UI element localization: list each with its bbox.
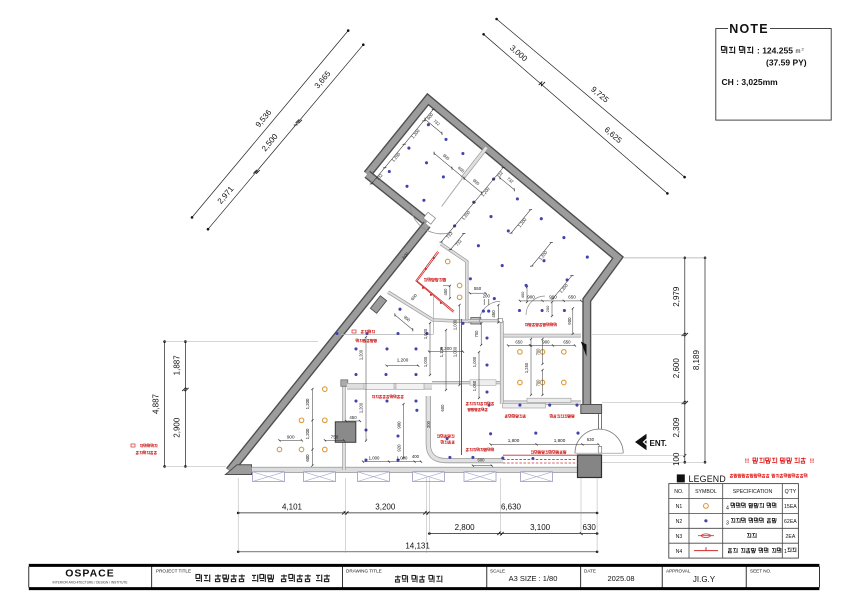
svg-text:100: 100 (672, 452, 681, 466)
svg-text:650: 650 (568, 295, 576, 300)
svg-text:2EA: 2EA (785, 534, 795, 540)
svg-text:1,000: 1,000 (423, 356, 428, 367)
svg-text:1,200: 1,200 (397, 358, 409, 363)
svg-text:4,887: 4,887 (152, 393, 161, 414)
svg-text:NO.: NO. (674, 489, 683, 495)
svg-text:3: 3 (726, 520, 729, 526)
svg-text:APPROVAL: APPROVAL (666, 569, 691, 574)
svg-text:15EA: 15EA (784, 504, 797, 510)
svg-text:SPECIFICATION: SPECIFICATION (733, 489, 773, 495)
svg-text:2,800: 2,800 (455, 523, 476, 532)
svg-text:900: 900 (397, 421, 402, 429)
svg-text:N1: N1 (676, 504, 683, 510)
svg-text:400: 400 (520, 291, 525, 298)
svg-text:920: 920 (397, 444, 402, 452)
svg-text:N2: N2 (676, 519, 683, 525)
svg-text:SYMBOL: SYMBOL (695, 489, 717, 495)
svg-text:900: 900 (527, 295, 535, 300)
svg-text:900: 900 (549, 295, 557, 300)
svg-text:2025.08: 2025.08 (607, 574, 634, 583)
svg-text:630: 630 (583, 523, 597, 532)
svg-text:2,900: 2,900 (172, 417, 181, 438)
svg-text:1,000: 1,000 (453, 346, 458, 357)
svg-text:600: 600 (440, 404, 445, 412)
svg-text:1,000: 1,000 (397, 455, 408, 460)
svg-text:3,200: 3,200 (375, 503, 396, 512)
svg-text:NOTE: NOTE (729, 22, 769, 36)
svg-text:m: m (796, 49, 801, 55)
svg-text:550: 550 (474, 286, 482, 291)
svg-text:2,979: 2,979 (672, 286, 681, 307)
svg-text:600: 600 (305, 454, 310, 462)
svg-text:2,309: 2,309 (672, 417, 681, 438)
svg-text:1,200: 1,200 (359, 349, 364, 360)
svg-text:700: 700 (474, 330, 479, 338)
svg-text:CH : 3,025mm: CH : 3,025mm (722, 77, 779, 87)
svg-text:1,200: 1,200 (305, 398, 310, 409)
svg-text:1,050: 1,050 (472, 380, 477, 391)
svg-text:1,800: 1,800 (554, 438, 566, 443)
svg-text:450: 450 (349, 415, 357, 420)
svg-text:INTERIOR ARCHITECTURE / DESIGN: INTERIOR ARCHITECTURE / DESIGN / INSTITU… (53, 581, 128, 585)
svg-text:3,100: 3,100 (530, 523, 551, 532)
svg-text:400: 400 (412, 454, 420, 459)
svg-text:1: 1 (784, 549, 787, 555)
svg-text:1,000: 1,000 (453, 319, 458, 330)
svg-text:ENT.: ENT. (650, 439, 667, 448)
svg-text:630: 630 (587, 437, 595, 442)
svg-text:200: 200 (545, 305, 550, 312)
svg-text:!!: !! (810, 458, 814, 465)
svg-text:6,630: 6,630 (501, 503, 522, 512)
svg-text:200: 200 (426, 420, 431, 428)
svg-text:SEET NO.: SEET NO. (750, 569, 771, 574)
svg-text:700: 700 (536, 348, 541, 356)
svg-text:650: 650 (515, 340, 523, 345)
svg-text:OSPACE: OSPACE (65, 568, 115, 580)
svg-text:: 124.255: : 124.255 (757, 46, 793, 56)
svg-text:450: 450 (443, 288, 448, 296)
svg-text:700: 700 (536, 379, 541, 387)
svg-text:LEGEND: LEGEND (689, 474, 726, 484)
svg-text:Q'TY: Q'TY (785, 489, 797, 495)
svg-text:900: 900 (542, 340, 550, 345)
svg-text:N3: N3 (676, 534, 683, 540)
svg-text:JI.G.Y: JI.G.Y (693, 575, 716, 584)
svg-text:600: 600 (478, 458, 486, 463)
svg-text:1,125: 1,125 (439, 346, 444, 357)
svg-text:1,250: 1,250 (524, 362, 529, 373)
svg-text:4,101: 4,101 (282, 503, 303, 512)
svg-text:DRAWING TITLE: DRAWING TITLE (346, 569, 382, 574)
svg-text:DATE: DATE (584, 569, 596, 574)
svg-text:62EA: 62EA (784, 519, 797, 525)
svg-text:1,000: 1,000 (423, 328, 428, 339)
svg-text:900: 900 (287, 435, 295, 440)
svg-text:750: 750 (331, 435, 339, 440)
svg-text:(37.59 PY): (37.59 PY) (766, 58, 807, 68)
svg-text:650: 650 (563, 340, 571, 345)
svg-text:200: 200 (483, 294, 491, 299)
svg-text:PROJECT TITLE: PROJECT TITLE (156, 569, 191, 574)
svg-text:SCALE: SCALE (490, 569, 505, 574)
svg-text:1,800: 1,800 (508, 438, 520, 443)
svg-text:1,200: 1,200 (305, 428, 310, 439)
svg-text:!!: !! (745, 458, 749, 465)
svg-text:1,000: 1,000 (472, 356, 477, 367)
svg-text:450: 450 (491, 310, 496, 318)
svg-text:1,000: 1,000 (369, 455, 380, 460)
svg-text:900: 900 (567, 317, 572, 325)
svg-text:A3 SIZE : 1/80: A3 SIZE : 1/80 (509, 574, 558, 583)
svg-text:8,189: 8,189 (692, 350, 701, 371)
svg-text:2,600: 2,600 (672, 358, 681, 379)
svg-text:1,200: 1,200 (359, 402, 364, 413)
svg-text:1,887: 1,887 (172, 355, 181, 376)
svg-text:4: 4 (726, 506, 729, 512)
svg-text:N4: N4 (676, 549, 683, 555)
